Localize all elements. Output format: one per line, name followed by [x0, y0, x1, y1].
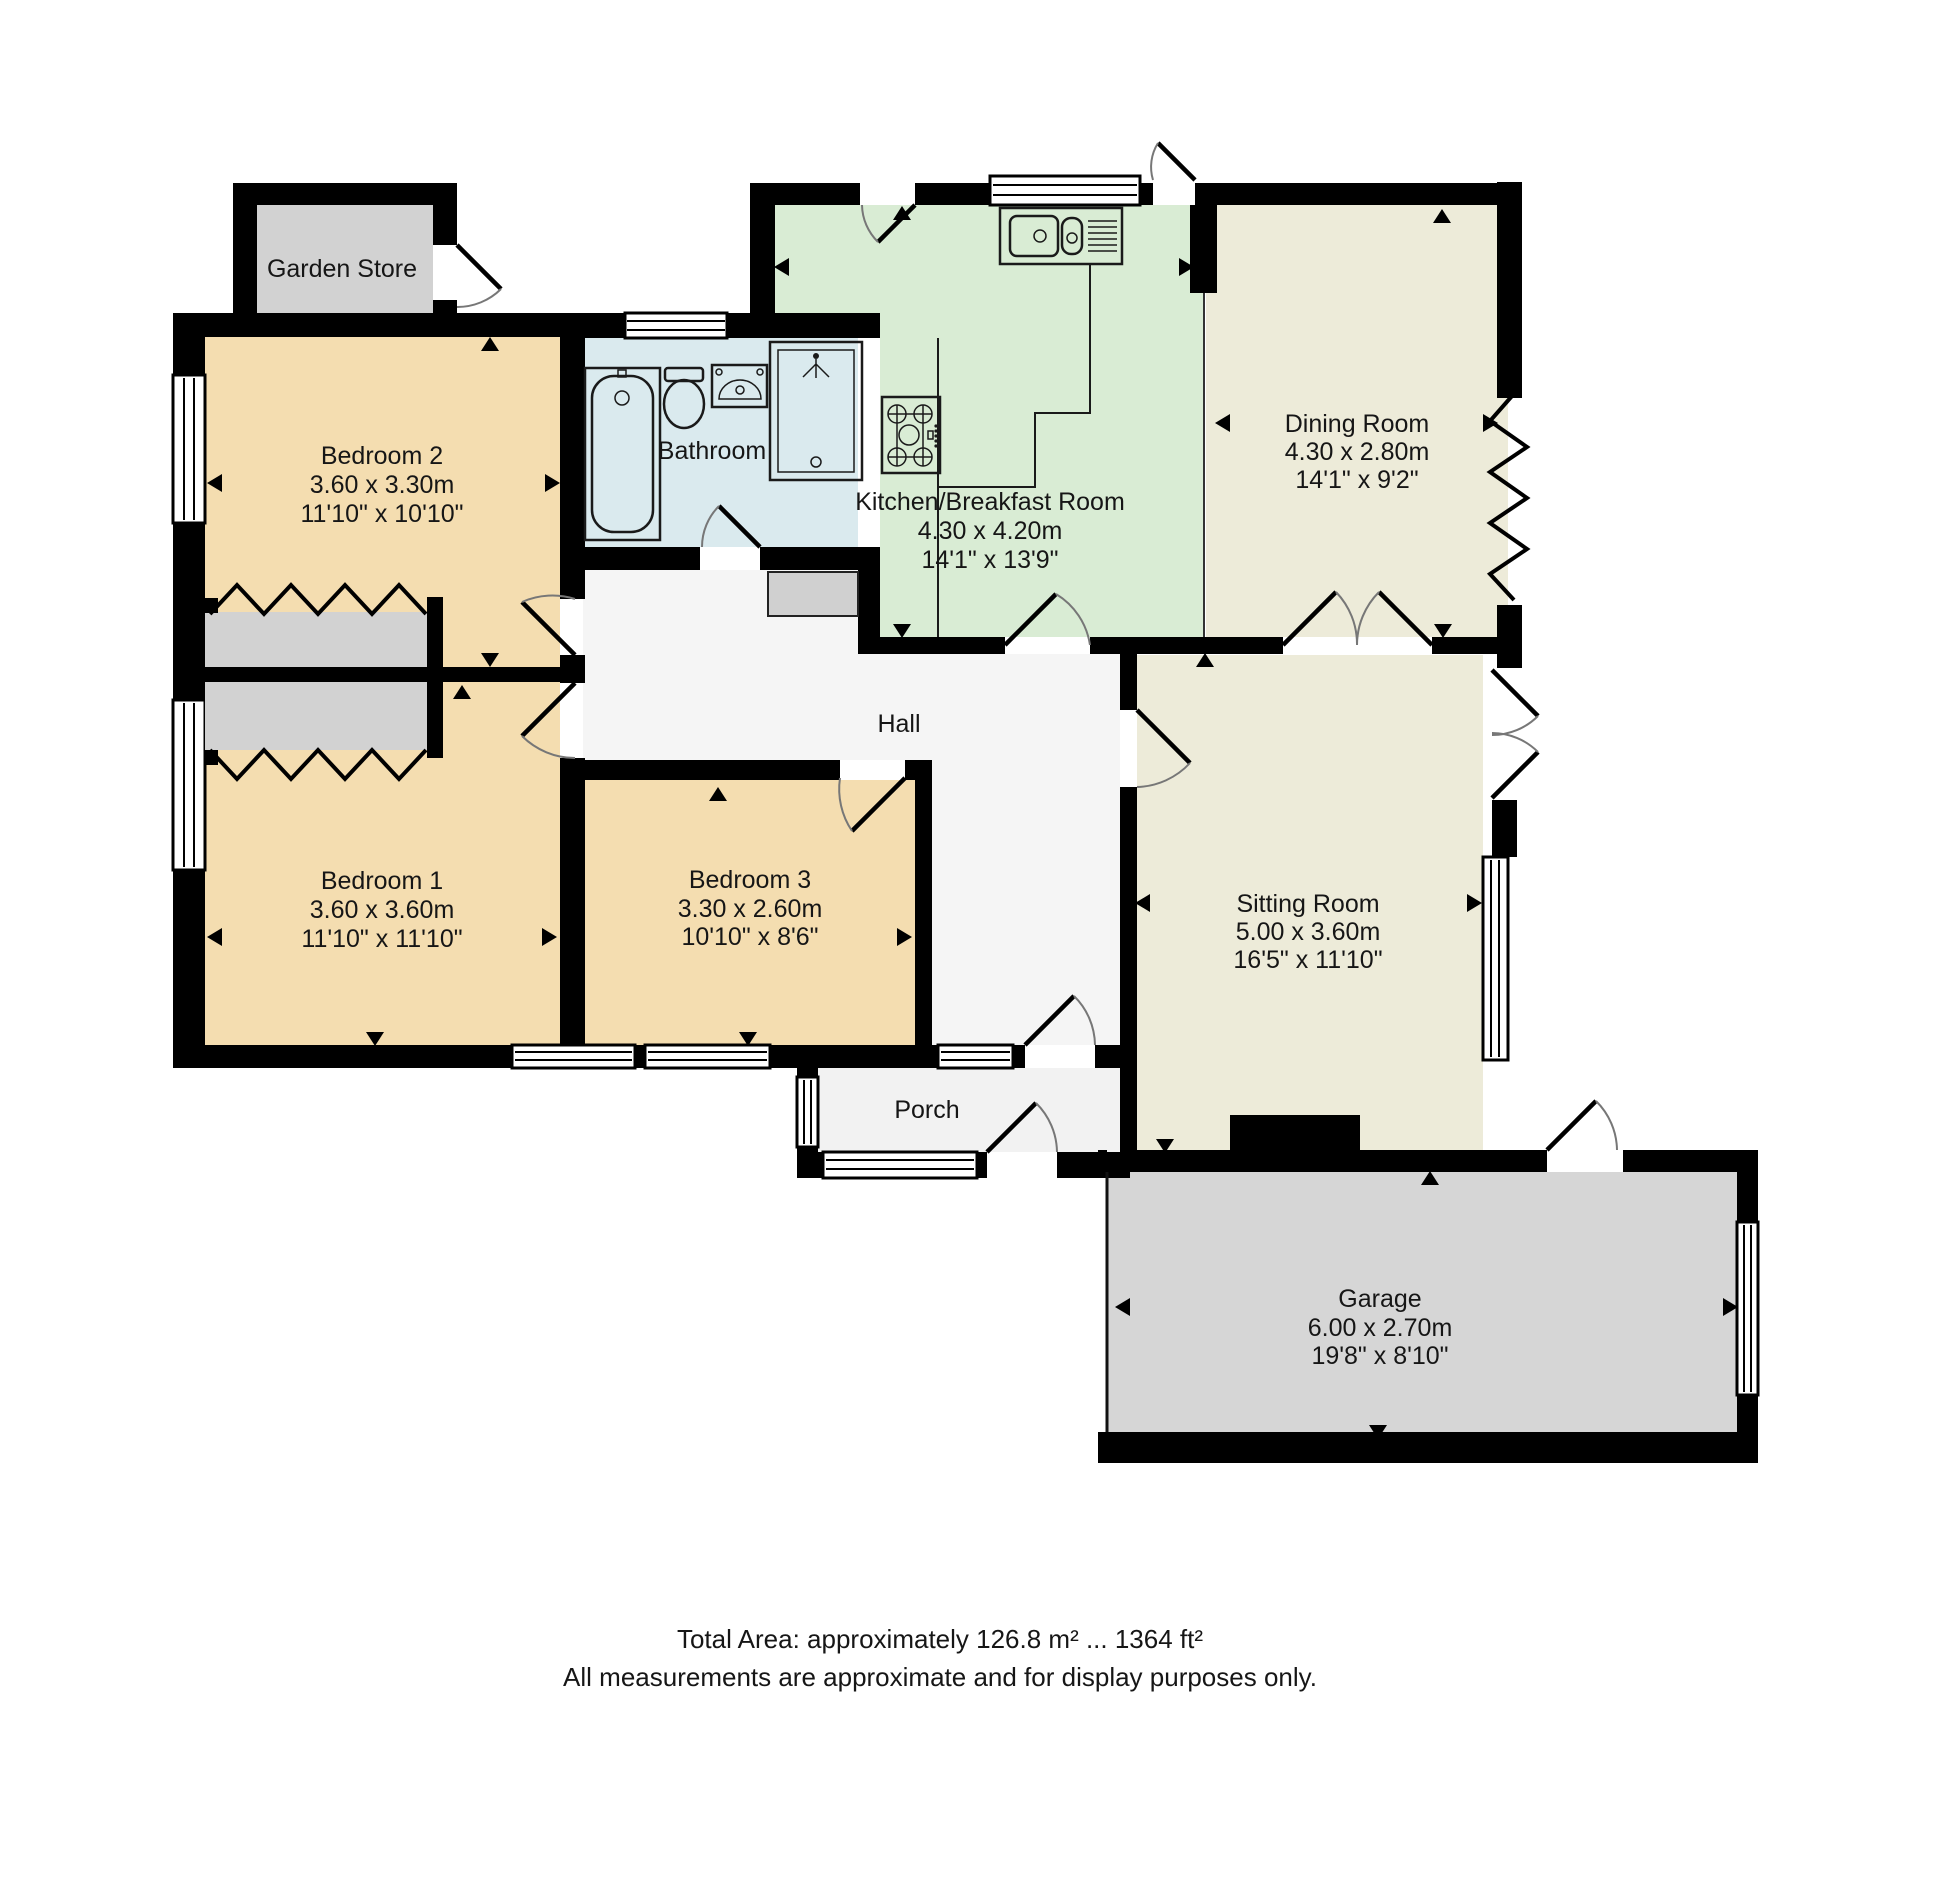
wall-segment	[173, 313, 585, 337]
wall-segment	[1013, 1045, 1025, 1068]
wall-segment	[915, 760, 932, 1045]
disclaimer-text: All measurements are approximate and for…	[563, 1662, 1317, 1692]
wall-segment	[1737, 1395, 1758, 1432]
wall-segment	[1057, 1152, 1130, 1178]
bedroom3-dim-ft: 10'10" x 8'6"	[681, 923, 818, 951]
wall-segment	[433, 183, 457, 245]
floorplan-page: Garden Store Bedroom 2 3.60 x 3.30m 11'1…	[0, 0, 1944, 1888]
garden-store-door	[457, 245, 501, 307]
bedroom2-wardrobe	[205, 612, 427, 667]
window	[512, 1045, 635, 1068]
wall-segment	[173, 1045, 512, 1068]
wall-segment	[1090, 637, 1283, 654]
dining-room-dim-m: 4.30 x 2.80m	[1285, 438, 1430, 466]
wall-segment	[797, 1152, 823, 1178]
wall-segment	[560, 758, 585, 1045]
bedroom3-dim-m: 3.30 x 2.60m	[678, 895, 823, 923]
bathroom-label: Bathroom	[658, 437, 766, 465]
garage-dim-ft: 19'8" x 8'10"	[1311, 1342, 1448, 1370]
window	[645, 1045, 770, 1068]
wall-segment	[760, 547, 880, 570]
wall-segment	[1190, 205, 1217, 293]
wall-segment	[1432, 637, 1522, 654]
wall-segment	[1497, 182, 1522, 398]
window	[1737, 1222, 1758, 1395]
footer: Total Area: approximately 126.8 m² ... 1…	[563, 1624, 1317, 1692]
window	[797, 1077, 818, 1147]
hall-cupboard	[768, 572, 858, 616]
floorplan-svg: Garden Store Bedroom 2 3.60 x 3.30m 11'1…	[0, 0, 1944, 1888]
wall-segment	[1140, 183, 1153, 205]
porch-floor	[818, 1068, 1120, 1152]
wall-segment	[750, 183, 860, 205]
bedroom1-dim-m: 3.60 x 3.60m	[310, 896, 455, 924]
wall-segment	[427, 597, 443, 758]
sitting-room-dim-ft: 16'5" x 11'10"	[1233, 946, 1382, 974]
garden-store-label: Garden Store	[267, 255, 417, 283]
bedroom1-dim-ft: 11'10" x 11'10"	[301, 925, 462, 953]
kitchen-side-door	[1151, 143, 1195, 180]
wall-segment	[233, 183, 457, 205]
sitting-room-dim-m: 5.00 x 3.60m	[1236, 918, 1381, 946]
window	[823, 1152, 977, 1178]
wall-segment	[560, 547, 700, 570]
dining-room-label: Dining Room	[1285, 410, 1430, 438]
garage-dim-m: 6.00 x 2.70m	[1308, 1314, 1453, 1342]
wall-segment	[173, 313, 205, 375]
bedroom1-label: Bedroom 1	[321, 867, 443, 895]
window	[1483, 857, 1508, 1060]
wall-segment	[1098, 1432, 1758, 1463]
hall-label: Hall	[877, 710, 920, 738]
kitchen-dim-ft: 14'1" x 13'9"	[921, 546, 1058, 574]
kitchen-label: Kitchen/Breakfast Room	[855, 488, 1125, 516]
wall-segment	[585, 760, 840, 780]
wall-segment	[1098, 1150, 1107, 1172]
wardrobe-end	[205, 750, 218, 765]
bedroom2-dim-ft: 11'10" x 10'10"	[300, 500, 463, 528]
garage-side-door	[1547, 1101, 1617, 1150]
wall-segment	[173, 870, 205, 1068]
kitchen-dim-m: 4.30 x 4.20m	[918, 517, 1063, 545]
wall-segment	[1120, 1150, 1547, 1172]
porch-label: Porch	[894, 1096, 959, 1124]
wall-segment	[770, 1045, 938, 1068]
total-area-text: Total Area: approximately 126.8 m² ... 1…	[677, 1624, 1203, 1654]
window	[173, 375, 205, 523]
wall-segment	[1737, 1150, 1758, 1222]
wall-segment	[1492, 800, 1517, 857]
sitting-french-doors	[1492, 670, 1538, 798]
chimney-breast	[1230, 1115, 1360, 1152]
wall-segment	[1120, 787, 1137, 1172]
bedroom2-dim-m: 3.60 x 3.30m	[310, 471, 455, 499]
wall-segment	[727, 313, 880, 338]
window	[173, 700, 205, 870]
window	[990, 176, 1140, 205]
wall-segment	[1195, 183, 1522, 205]
wall-segment	[183, 667, 583, 682]
wall-segment	[915, 183, 990, 205]
wall-segment	[1120, 653, 1137, 710]
garage-label: Garage	[1338, 1285, 1421, 1313]
garage-floor	[1107, 1172, 1737, 1432]
wardrobe-end	[205, 598, 218, 613]
dining-room-dim-ft: 14'1" x 9'2"	[1295, 466, 1418, 494]
window	[938, 1045, 1013, 1068]
window	[625, 313, 727, 338]
bedroom2-label: Bedroom 2	[321, 442, 443, 470]
bedroom1-wardrobe	[205, 682, 427, 750]
wall-segment	[1497, 605, 1522, 668]
bedroom3-label: Bedroom 3	[689, 866, 811, 894]
wall-segment	[858, 637, 1005, 654]
wall-segment	[585, 313, 625, 338]
sitting-room-label: Sitting Room	[1236, 890, 1379, 918]
